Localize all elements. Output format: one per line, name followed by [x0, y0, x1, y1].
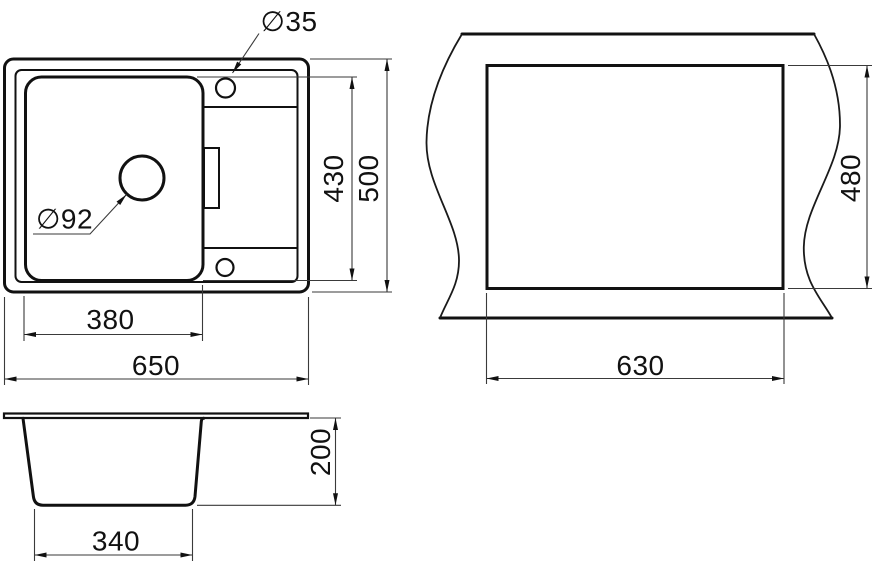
dim-label-overall-width: 650 — [132, 350, 180, 381]
dim-label-cutout-depth: 480 — [835, 154, 866, 202]
dim-label-overall-depth: 500 — [353, 154, 384, 202]
sink-outer-outline — [5, 59, 309, 292]
rim-plate-profile — [4, 414, 308, 419]
leader-faucet-diameter — [233, 34, 260, 74]
bowl-outline — [26, 77, 204, 281]
drain-hole — [120, 156, 164, 200]
dim-label-bowl-height: 200 — [305, 428, 336, 476]
bowl-section-profile — [23, 418, 204, 505]
countertop-cutout-view: 480 630 — [426, 34, 872, 384]
dim-label-bottom-width: 340 — [92, 526, 140, 557]
countertop-break-line-left — [426, 34, 462, 318]
dim-label-bowl-width: 380 — [86, 304, 134, 335]
sink-technical-drawing: ∅35 ∅92 430 500 380 650 4 — [0, 0, 875, 563]
dim-label-bowl-depth: 430 — [318, 154, 349, 202]
dim-label-drain-diameter: ∅92 — [36, 204, 93, 235]
sink-rim-outline — [16, 70, 298, 282]
drawing-canvas: ∅35 ∅92 430 500 380 650 4 — [0, 0, 875, 563]
sink-top-view: ∅35 ∅92 430 500 380 650 — [5, 6, 393, 385]
faucet-hole-bottom — [217, 259, 234, 276]
faucet-hole-top — [216, 79, 235, 98]
overflow-notch — [204, 148, 219, 208]
sink-side-view: 200 340 — [4, 414, 341, 562]
dim-label-cutout-width: 630 — [616, 350, 664, 381]
dim-label-faucet-diameter: ∅35 — [261, 6, 318, 37]
cutout-outline — [487, 66, 783, 289]
